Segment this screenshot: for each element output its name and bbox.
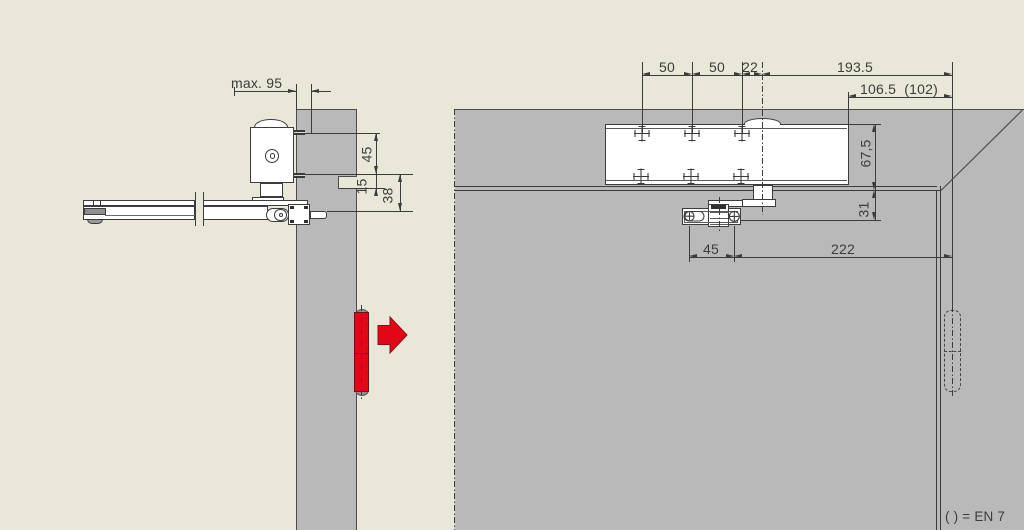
shoe-pin <box>310 211 327 219</box>
extension-line <box>298 133 380 134</box>
arm-end-foot <box>87 219 103 224</box>
door-break-axis-line <box>454 109 455 530</box>
dim-line-106 <box>848 97 952 98</box>
door-edge-line <box>940 186 941 530</box>
frame-rebate-line <box>455 186 937 187</box>
arm-end-tick <box>100 200 101 206</box>
dim-label-67: 67,5 <box>859 134 874 174</box>
break-line <box>203 192 204 226</box>
spindle-circle-inner <box>270 153 276 159</box>
break-line <box>195 192 196 226</box>
body-inner-edge <box>606 180 847 181</box>
dim-line-67-31 <box>875 124 876 220</box>
dim-label-106: 106.5 (102) <box>849 82 949 97</box>
arm-end-block <box>84 208 106 216</box>
hinge-axis-line <box>361 305 362 399</box>
arrowhead <box>944 254 952 258</box>
spindle-foot <box>742 199 776 208</box>
arrowhead <box>374 188 378 196</box>
dim-label-45: 45 <box>360 140 375 170</box>
arrowhead <box>692 72 700 76</box>
arrowhead <box>398 174 402 182</box>
dim-line-max95 <box>234 91 296 92</box>
dim-label-45b: 45 <box>696 242 726 257</box>
shoe-screw-mark <box>304 206 308 209</box>
dim-label-15: 15 <box>355 172 370 202</box>
frame-rebate-line <box>455 190 940 191</box>
extension-line <box>848 124 881 125</box>
dim-label-50a: 50 <box>652 60 682 75</box>
dim-label-193: 193.5 <box>832 60 878 75</box>
arrowhead <box>726 254 734 258</box>
spindle-axis-line <box>762 62 763 215</box>
extension-line <box>296 84 297 110</box>
arrowhead <box>642 72 650 76</box>
dim-label-38: 38 <box>381 181 396 211</box>
arm-inner-line <box>105 215 195 216</box>
pinion-housing <box>260 183 283 197</box>
arrowhead <box>398 203 402 211</box>
arrowhead <box>872 124 876 132</box>
shoe-screw-mark <box>304 220 308 223</box>
dim-label-50b: 50 <box>702 60 732 75</box>
arm-end-tick <box>93 200 94 206</box>
hidden-hinge-axis-line <box>952 306 953 398</box>
arrowhead <box>872 182 876 190</box>
arm-lower-bar <box>203 206 268 220</box>
arrowhead <box>288 89 296 93</box>
wall-section-bar <box>296 109 357 530</box>
shoe-screw-mark <box>290 220 294 223</box>
dim-line-tail <box>311 91 331 92</box>
arrowhead <box>872 212 876 220</box>
dim-label-31: 31 <box>857 195 872 225</box>
extension-line <box>311 84 312 133</box>
legend-note: ( ) = EN 7 <box>945 509 1023 524</box>
dim-label-222: 222 <box>826 242 860 257</box>
dim-line-45-15 <box>376 133 377 196</box>
dim-label-max95: max. 95 <box>231 76 289 91</box>
arrowhead <box>872 190 876 198</box>
door-edge-line <box>936 190 937 530</box>
door-closer-installation-drawing: max. 95 45 15 38 <box>0 0 1024 530</box>
dim-label-22: 22 <box>735 60 765 75</box>
arrowhead <box>944 72 952 76</box>
hinge-axis-extension <box>952 62 953 310</box>
arrowhead <box>734 254 742 258</box>
shoe-screw-mark <box>290 206 294 209</box>
knuckle-axis-line <box>719 197 720 231</box>
arrowhead <box>684 72 692 76</box>
opening-direction-arrow-icon <box>378 317 407 353</box>
extension-line <box>327 211 413 212</box>
arm-elbow-pin <box>279 213 284 218</box>
